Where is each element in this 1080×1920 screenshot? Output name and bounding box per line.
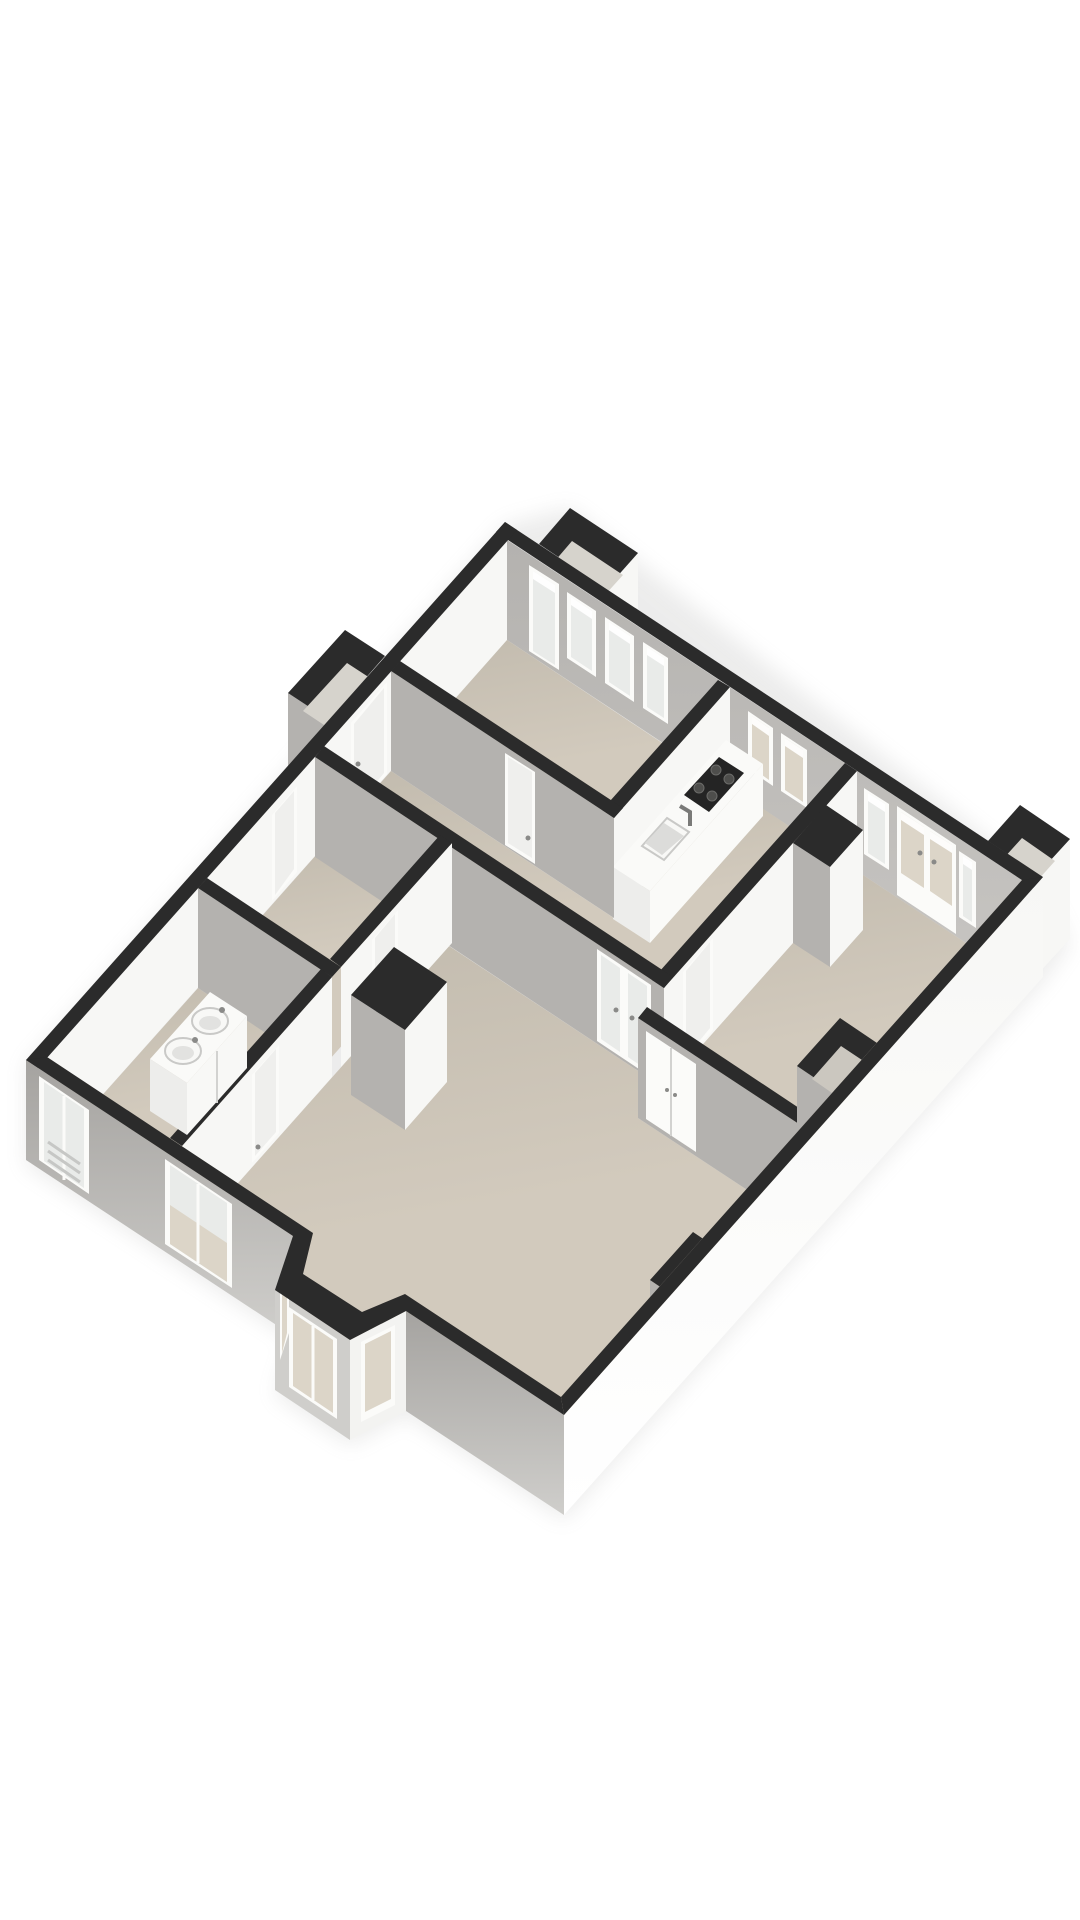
door-handle [918, 851, 923, 856]
faucet-icon [219, 1007, 225, 1013]
burner [724, 774, 734, 784]
faucet-icon [192, 1037, 198, 1043]
burner [711, 765, 721, 775]
floor-plan-page [0, 0, 1080, 1920]
door-handle [356, 762, 361, 767]
door-handle [256, 1145, 261, 1150]
door-handle [526, 836, 531, 841]
vanity-sink-2 [165, 1037, 201, 1064]
bay-window-right [361, 1325, 395, 1422]
door-handle [630, 1016, 635, 1021]
bedroom1-door [505, 753, 535, 864]
door-handle [673, 1093, 677, 1097]
floor-plan-3d [0, 0, 1080, 1920]
vanity-sink-1 [192, 1007, 228, 1034]
door-handle [614, 1008, 619, 1013]
door-handle [932, 860, 937, 865]
burner [707, 791, 717, 801]
burner [694, 783, 704, 793]
door-handle [665, 1088, 669, 1092]
bedroom2-window-2 [959, 851, 976, 928]
